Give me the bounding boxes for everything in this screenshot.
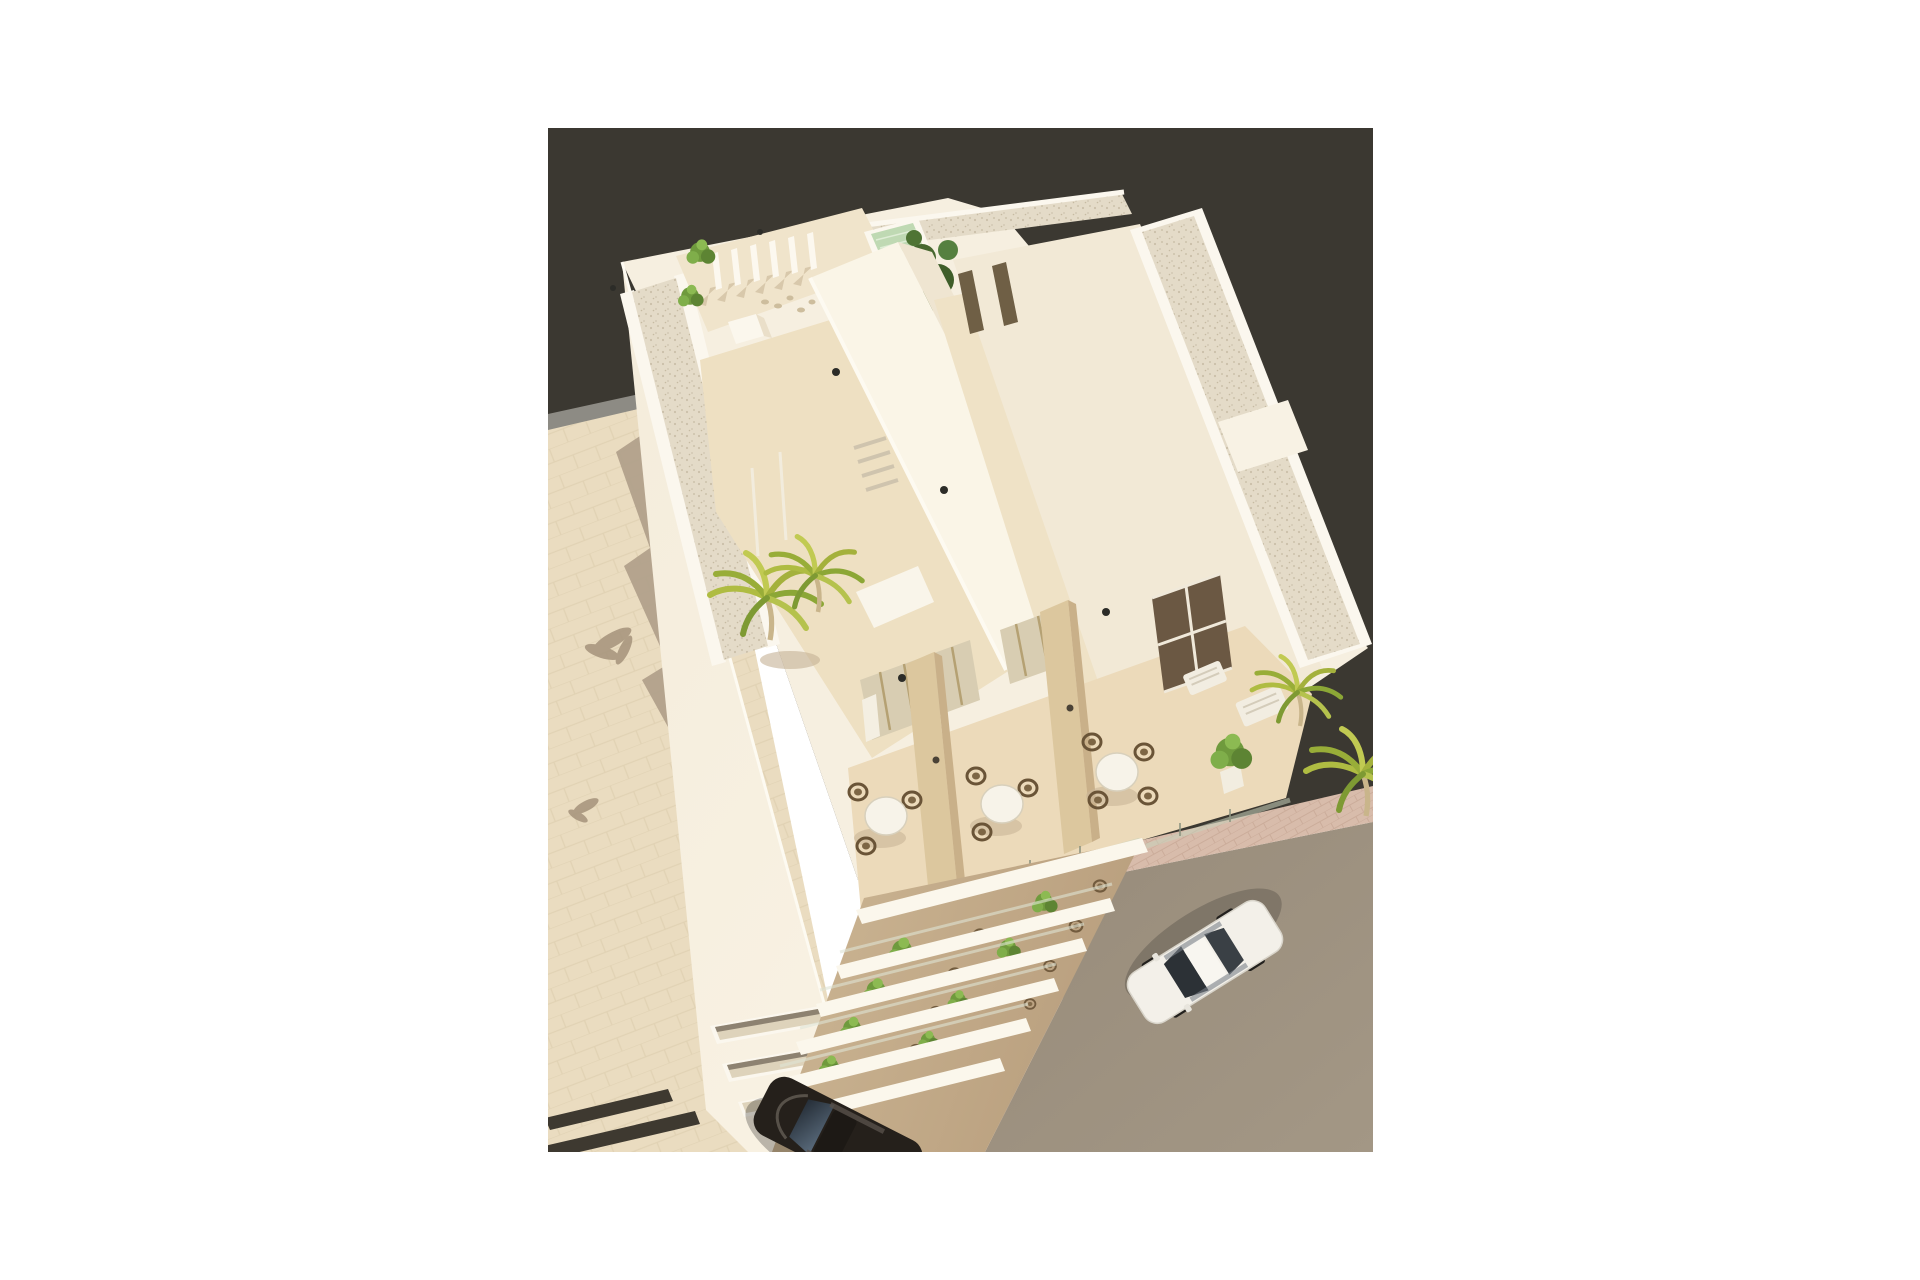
wall-lamp bbox=[832, 368, 840, 376]
wall-lamp bbox=[1102, 608, 1110, 616]
render-page bbox=[0, 0, 1920, 1280]
wall-lamp bbox=[898, 674, 906, 682]
architectural-render-image bbox=[0, 0, 1920, 1280]
roof-drain bbox=[610, 285, 616, 291]
palm-shadow bbox=[760, 651, 820, 669]
wall-lamp bbox=[940, 486, 948, 494]
roof-drain bbox=[757, 229, 763, 235]
round-table bbox=[981, 785, 1023, 823]
round-table bbox=[865, 797, 907, 835]
round-table bbox=[1096, 753, 1138, 791]
